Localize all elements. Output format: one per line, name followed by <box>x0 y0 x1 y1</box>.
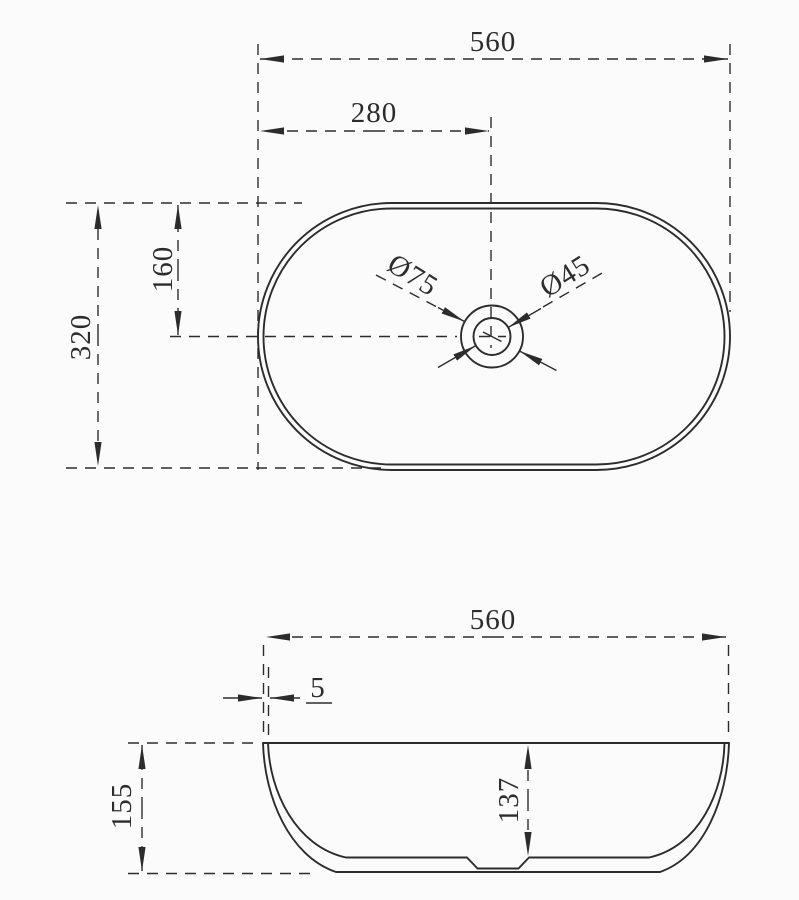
dim-label-top-width: 560 <box>470 26 517 58</box>
dim-label-inner-depth: 137 <box>493 777 525 824</box>
dim-top-overall-width: 560 <box>258 26 730 470</box>
dim-top-center-offset-y: 160 <box>147 205 506 337</box>
leader-arrow <box>508 309 541 328</box>
dim-label-overall-height: 155 <box>106 783 138 830</box>
dim-label-overall-depth: 320 <box>65 314 97 361</box>
top-view: 560 280 320 160 <box>65 26 730 470</box>
dim-side-overall-width: 560 <box>264 604 729 740</box>
dim-side-inner-depth: 137 <box>493 745 528 856</box>
side-view: 560 5 155 137 <box>106 604 729 874</box>
dim-label-side-width: 560 <box>470 604 517 636</box>
dim-label-rim-thickness: 5 <box>310 672 326 704</box>
dim-label-center-offset-x: 280 <box>351 97 398 129</box>
leader-arrow <box>438 308 465 322</box>
leader-arrow <box>438 346 476 368</box>
dim-label-drain-inner: Ø45 <box>534 249 596 304</box>
dim-top-overall-depth: 320 <box>65 203 386 468</box>
basin-drawing-svg: 560 280 320 160 <box>0 0 799 900</box>
leader-arrow <box>520 351 557 371</box>
technical-drawing-canvas: 560 280 320 160 <box>0 0 799 900</box>
dim-top-center-offset-x: 280 <box>260 97 491 348</box>
dim-label-center-offset-y: 160 <box>147 246 179 293</box>
dim-side-rim-thickness: 5 <box>223 667 332 739</box>
